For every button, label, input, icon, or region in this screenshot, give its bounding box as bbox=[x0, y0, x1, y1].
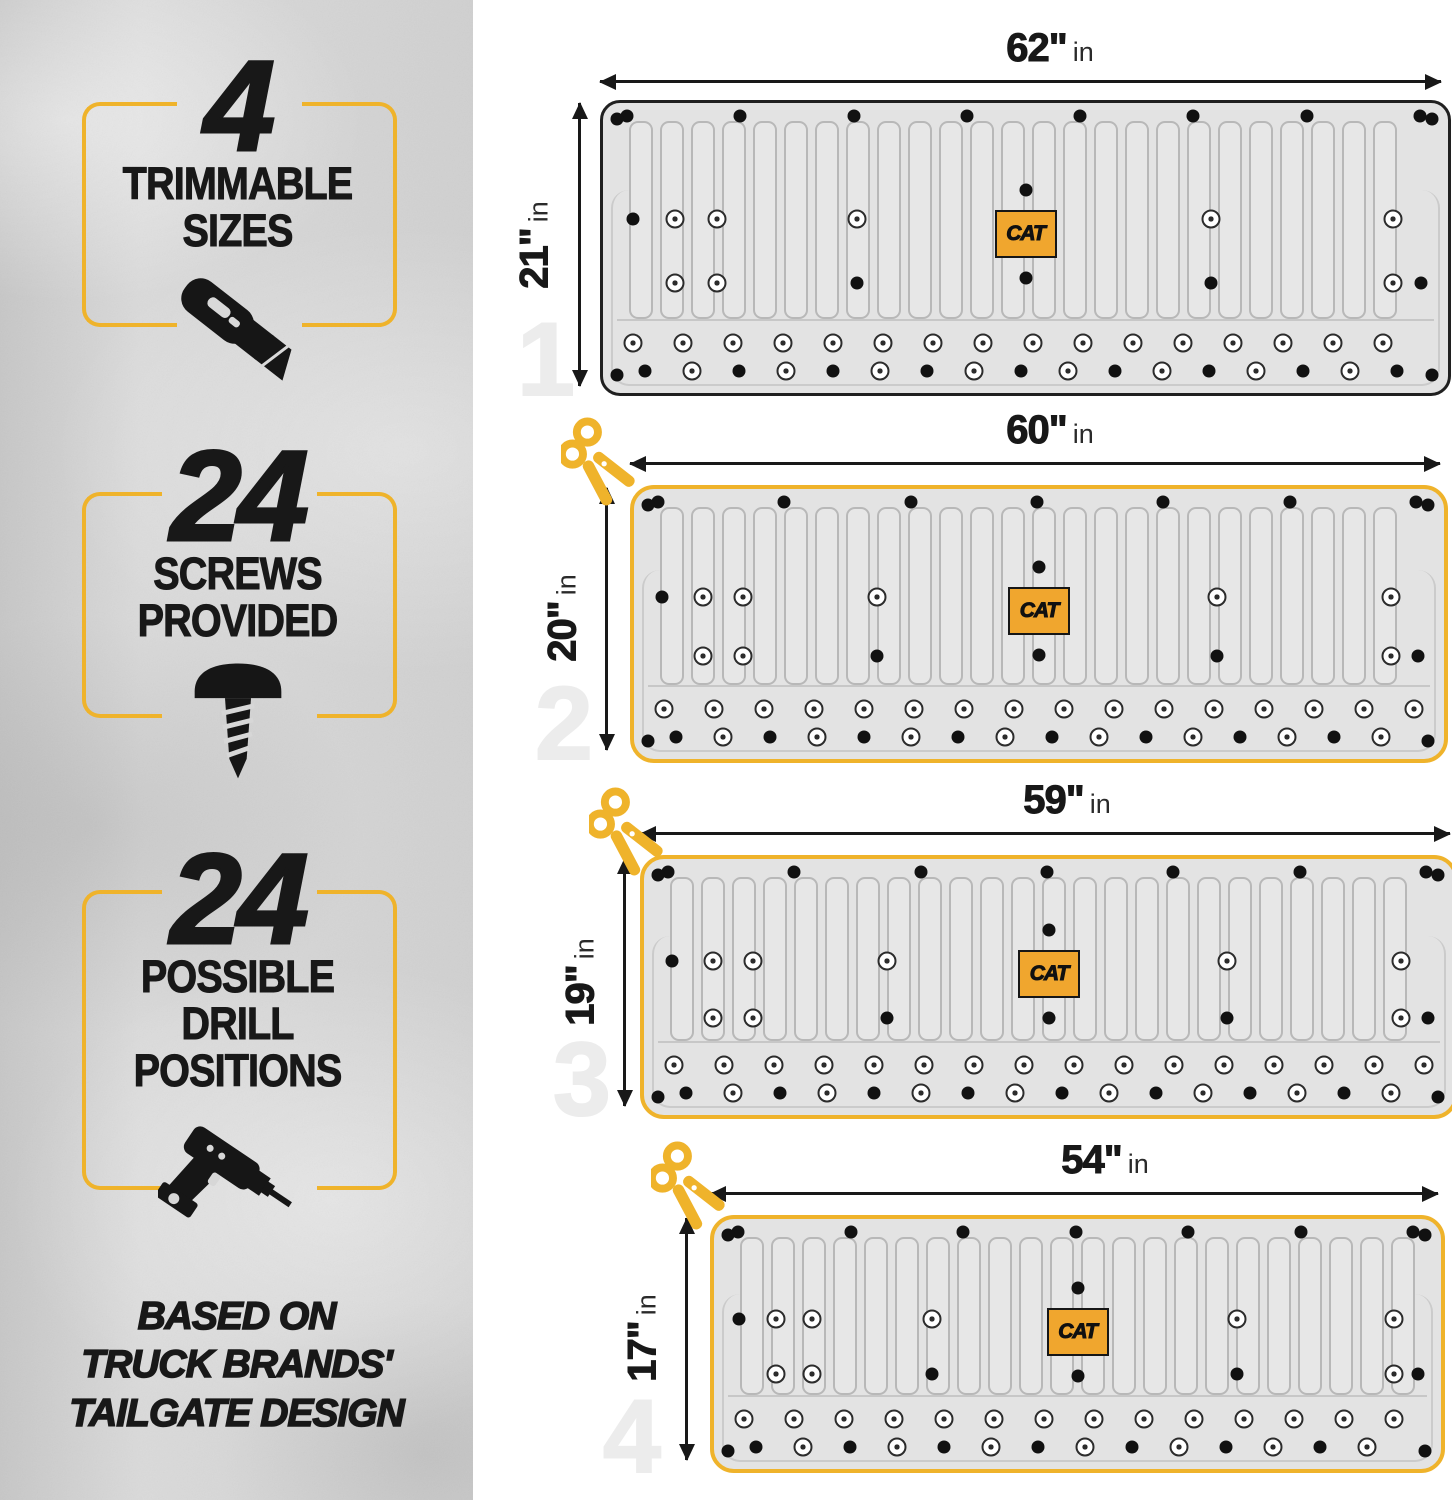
mat-slat bbox=[856, 877, 880, 1041]
rivet-dot bbox=[805, 700, 824, 719]
rivet-dot bbox=[982, 1438, 1001, 1457]
rivet-dot bbox=[1202, 210, 1221, 229]
rivet-dot bbox=[1205, 700, 1224, 719]
mat-slat bbox=[846, 507, 870, 685]
mat-slat bbox=[1104, 877, 1128, 1041]
mat-slat bbox=[1174, 1237, 1198, 1395]
rivet-dot bbox=[871, 362, 890, 381]
width-arrow bbox=[640, 832, 1450, 835]
screw-dot bbox=[952, 731, 965, 744]
screw-dot bbox=[1420, 866, 1433, 879]
rivet-dot bbox=[714, 728, 733, 747]
rivet-dot bbox=[693, 647, 712, 666]
screw-dot bbox=[1297, 365, 1310, 378]
mat-slat bbox=[784, 507, 808, 685]
mat-slat bbox=[864, 1237, 888, 1395]
screw-dot bbox=[1019, 271, 1032, 284]
mat-slat bbox=[825, 877, 849, 1041]
rivet-dot bbox=[1065, 1056, 1084, 1075]
mat-slat bbox=[1094, 121, 1118, 319]
screw-dot bbox=[904, 496, 917, 509]
height-dimension-label: 20"in bbox=[541, 574, 586, 661]
mat-slat bbox=[794, 877, 818, 1041]
mat-slat bbox=[1094, 507, 1118, 685]
rivet-dot bbox=[734, 588, 753, 607]
rivet-dot bbox=[1224, 334, 1243, 353]
rivet-dot bbox=[1055, 700, 1074, 719]
rivet-dot bbox=[1105, 700, 1124, 719]
rivet-dot bbox=[1355, 700, 1374, 719]
screw-dot bbox=[1414, 110, 1427, 123]
screw-dot bbox=[881, 1012, 894, 1025]
mat-slat bbox=[1259, 877, 1283, 1041]
mat-slat bbox=[1280, 507, 1304, 685]
screw-dot bbox=[960, 110, 973, 123]
rivet-dot bbox=[1085, 1410, 1104, 1429]
rivet-dot bbox=[724, 334, 743, 353]
rivet-dot bbox=[818, 1084, 837, 1103]
rivet-dot bbox=[1124, 334, 1143, 353]
rivet-dot bbox=[885, 1410, 904, 1429]
screw-dot bbox=[750, 1441, 763, 1454]
mat-slat bbox=[1135, 877, 1159, 1041]
rivet-dot bbox=[1194, 1084, 1213, 1103]
rivet-dot bbox=[1264, 1438, 1283, 1457]
mat-slat bbox=[833, 1237, 857, 1395]
cat-logo: CAT bbox=[1047, 1308, 1109, 1356]
width-arrow bbox=[600, 80, 1441, 83]
tailgate-mat-1: CAT bbox=[600, 100, 1451, 396]
mat-slat bbox=[1290, 877, 1314, 1041]
rivet-dot bbox=[705, 700, 724, 719]
screw-dot bbox=[733, 1313, 746, 1326]
screw-dot bbox=[642, 735, 655, 748]
rivet-dot bbox=[815, 1056, 834, 1075]
rivet-dot bbox=[824, 334, 843, 353]
screw-dot bbox=[1203, 365, 1216, 378]
screw-dot bbox=[1293, 866, 1306, 879]
mat-slat bbox=[753, 507, 777, 685]
mat-slat bbox=[949, 877, 973, 1041]
rivet-dot bbox=[1274, 334, 1293, 353]
screw-dot bbox=[1414, 277, 1427, 290]
rivet-dot bbox=[855, 700, 874, 719]
screw-dot bbox=[639, 365, 652, 378]
screw-dot bbox=[914, 866, 927, 879]
rivet-dot bbox=[878, 952, 897, 971]
rivet-dot bbox=[1076, 1438, 1095, 1457]
screw-dot bbox=[962, 1087, 975, 1100]
slat-baseline bbox=[658, 1041, 1440, 1043]
screw-dot bbox=[1432, 869, 1445, 882]
tailgate-mat-2: CAT bbox=[630, 485, 1448, 763]
height-arrow bbox=[578, 103, 581, 386]
screw-dot bbox=[1205, 277, 1218, 290]
feature-count: 24 bbox=[60, 441, 415, 554]
rivet-dot bbox=[683, 362, 702, 381]
screw-dot bbox=[1314, 1441, 1327, 1454]
rivet-dot bbox=[865, 1056, 884, 1075]
rivet-dot bbox=[803, 1365, 822, 1384]
rivet-dot bbox=[1385, 1410, 1404, 1429]
screw-dot bbox=[1426, 369, 1439, 382]
screw-dot bbox=[1422, 499, 1435, 512]
screw-dot bbox=[611, 113, 624, 126]
screw-dot bbox=[1410, 496, 1423, 509]
rivet-dot bbox=[868, 588, 887, 607]
rivet-dot bbox=[1384, 1365, 1403, 1384]
rivet-dot bbox=[1365, 1056, 1384, 1075]
rivet-dot bbox=[905, 700, 924, 719]
rivet-dot bbox=[985, 1410, 1004, 1429]
width-dimension-label: 54"in bbox=[1061, 1138, 1148, 1183]
rivet-dot bbox=[1255, 700, 1274, 719]
screw-dot bbox=[850, 277, 863, 290]
rivet-dot bbox=[1155, 700, 1174, 719]
slat-baseline bbox=[617, 319, 1434, 321]
screw-dot bbox=[626, 213, 639, 226]
feature-count: 4 bbox=[60, 51, 415, 164]
rivet-dot bbox=[1074, 334, 1093, 353]
mat-slat bbox=[1311, 121, 1335, 319]
screw-dot bbox=[1300, 110, 1313, 123]
screw-dot bbox=[844, 1226, 857, 1239]
screw-dot bbox=[1031, 496, 1044, 509]
rivet-dot bbox=[708, 210, 727, 229]
size-diagrams-panel: 62"in 21"in CAT 1 bbox=[473, 0, 1452, 1500]
screw-dot bbox=[1211, 650, 1224, 663]
slat-baseline bbox=[648, 685, 1430, 687]
screw-dot bbox=[778, 496, 791, 509]
rivet-dot bbox=[774, 334, 793, 353]
rivet-dot bbox=[1392, 952, 1411, 971]
rivet-dot bbox=[965, 1056, 984, 1075]
rivet-dot bbox=[1335, 1410, 1354, 1429]
rivet-dot bbox=[1382, 647, 1401, 666]
screw-dot bbox=[1407, 1226, 1420, 1239]
screw-dot bbox=[1283, 496, 1296, 509]
feature-count: 24 bbox=[60, 844, 415, 957]
rivet-dot bbox=[803, 1310, 822, 1329]
screw-dot bbox=[1220, 1441, 1233, 1454]
feature-label: SCREWS PROVIDED bbox=[40, 551, 435, 645]
screw-dot bbox=[1043, 924, 1056, 937]
mat-slat bbox=[763, 877, 787, 1041]
mat-number-watermark: 2 bbox=[535, 672, 590, 776]
rivet-dot bbox=[974, 334, 993, 353]
mat-slat bbox=[1342, 121, 1366, 319]
screw-dot bbox=[827, 365, 840, 378]
screw-dot bbox=[733, 365, 746, 378]
feature-drill-positions: 24 POSSIBLE DRILL POSITIONS bbox=[60, 840, 415, 1270]
rivet-dot bbox=[744, 1009, 763, 1028]
screw-dot bbox=[926, 1368, 939, 1381]
rivet-dot bbox=[624, 334, 643, 353]
screw-dot bbox=[611, 369, 624, 382]
screw-dot bbox=[680, 1087, 693, 1100]
rivet-dot bbox=[1358, 1438, 1377, 1457]
screw-dot bbox=[858, 731, 871, 744]
rivet-dot bbox=[996, 728, 1015, 747]
rivet-dot bbox=[1170, 1438, 1189, 1457]
rivet-dot bbox=[1384, 1310, 1403, 1329]
feature-screws-provided: 24 SCREWS PROVIDED bbox=[60, 435, 415, 787]
mat-slat bbox=[1166, 877, 1190, 1041]
screw-dot bbox=[1033, 560, 1046, 573]
slat-baseline bbox=[728, 1395, 1427, 1397]
rivet-dot bbox=[965, 362, 984, 381]
infographic-canvas: 4 TRIMMABLE SIZES bbox=[0, 0, 1452, 1500]
footnote: BASED ON TRUCK BRANDS' TAILGATE DESIGN bbox=[0, 1293, 473, 1438]
screw-dot bbox=[957, 1226, 970, 1239]
mat-slat bbox=[908, 121, 932, 319]
mat-slat bbox=[1311, 507, 1335, 685]
screw-dot bbox=[670, 731, 683, 744]
rivet-dot bbox=[655, 700, 674, 719]
rivet-dot bbox=[766, 1365, 785, 1384]
rivet-dot bbox=[912, 1084, 931, 1103]
mat-slat bbox=[1125, 507, 1149, 685]
mat-slat bbox=[1280, 121, 1304, 319]
height-dimension-label: 17"in bbox=[621, 1294, 666, 1381]
screw-dot bbox=[1411, 1368, 1424, 1381]
mat-slat bbox=[1156, 507, 1180, 685]
screw-dot bbox=[1231, 1368, 1244, 1381]
screw-dot bbox=[938, 1441, 951, 1454]
rivet-dot bbox=[1265, 1056, 1284, 1075]
mat-slat bbox=[939, 507, 963, 685]
screw-dot bbox=[1150, 1087, 1163, 1100]
rivet-dot bbox=[1382, 588, 1401, 607]
rivet-dot bbox=[1247, 362, 1266, 381]
height-arrow bbox=[605, 488, 608, 750]
screw-dot bbox=[1032, 1441, 1045, 1454]
rivet-dot bbox=[755, 700, 774, 719]
rivet-dot bbox=[734, 647, 753, 666]
rivet-dot bbox=[785, 1410, 804, 1429]
screw-dot bbox=[1234, 731, 1247, 744]
mat-slat bbox=[1267, 1237, 1291, 1395]
rivet-dot bbox=[794, 1438, 813, 1457]
width-arrow bbox=[630, 462, 1440, 465]
screw-dot bbox=[1140, 731, 1153, 744]
rivet-dot bbox=[902, 728, 921, 747]
screw-dot bbox=[764, 731, 777, 744]
rivet-dot bbox=[1218, 952, 1237, 971]
screw-dot bbox=[1041, 866, 1054, 879]
drill-icon bbox=[60, 1102, 415, 1252]
screw-dot bbox=[1182, 1226, 1195, 1239]
rivet-dot bbox=[1215, 1056, 1234, 1075]
utility-knife-icon bbox=[60, 257, 415, 407]
screw-dot bbox=[1043, 1012, 1056, 1025]
rivet-dot bbox=[777, 362, 796, 381]
screw-dot bbox=[1412, 650, 1425, 663]
mat-slat bbox=[1360, 1237, 1384, 1395]
mat-slat bbox=[895, 1237, 919, 1395]
rivet-dot bbox=[923, 1310, 942, 1329]
screw-dot bbox=[722, 1445, 735, 1458]
screw-dot bbox=[844, 1441, 857, 1454]
rivet-dot bbox=[915, 1056, 934, 1075]
rivet-dot bbox=[708, 274, 727, 293]
rivet-dot bbox=[888, 1438, 907, 1457]
rivet-dot bbox=[1405, 700, 1424, 719]
scissors-icon bbox=[561, 416, 649, 513]
mat-number-watermark: 4 bbox=[603, 1385, 658, 1489]
rivet-dot bbox=[1006, 1084, 1025, 1103]
mat-slat bbox=[1352, 877, 1376, 1041]
mat-slat bbox=[957, 1237, 981, 1395]
screw-dot bbox=[847, 110, 860, 123]
rivet-dot bbox=[1305, 700, 1324, 719]
screw-dot bbox=[1419, 1445, 1432, 1458]
screw-dot bbox=[1019, 183, 1032, 196]
rivet-dot bbox=[1372, 728, 1391, 747]
screw-dot bbox=[1074, 110, 1087, 123]
mat-slat bbox=[988, 1237, 1012, 1395]
rivet-dot bbox=[1184, 728, 1203, 747]
mat-slat bbox=[1249, 507, 1273, 685]
mat-slat bbox=[1063, 121, 1087, 319]
screw-dot bbox=[656, 591, 669, 604]
rivet-dot bbox=[766, 1310, 785, 1329]
screw-dot bbox=[921, 365, 934, 378]
screw-dot bbox=[774, 1087, 787, 1100]
rivet-dot bbox=[955, 700, 974, 719]
rivet-dot bbox=[1059, 362, 1078, 381]
rivet-dot bbox=[665, 1056, 684, 1075]
rivet-dot bbox=[924, 334, 943, 353]
mat-slat bbox=[1125, 121, 1149, 319]
mat-slat bbox=[753, 121, 777, 319]
tailgate-mat-3: CAT bbox=[640, 855, 1452, 1119]
rivet-dot bbox=[1165, 1056, 1184, 1075]
rivet-dot bbox=[1288, 1084, 1307, 1103]
screw-dot bbox=[1046, 731, 1059, 744]
rivet-dot bbox=[1208, 588, 1227, 607]
cat-logo: CAT bbox=[1008, 587, 1070, 635]
screw-dot bbox=[1419, 1229, 1432, 1242]
mat-slat bbox=[877, 121, 901, 319]
cat-triangle bbox=[1044, 981, 1056, 989]
mat-slat bbox=[1329, 1237, 1353, 1395]
screw-dot bbox=[1167, 866, 1180, 879]
width-dimension-label: 59"in bbox=[1023, 778, 1110, 823]
scissors-icon bbox=[651, 1140, 739, 1237]
rivet-dot bbox=[808, 728, 827, 747]
screw-dot bbox=[652, 1091, 665, 1104]
rivet-dot bbox=[1090, 728, 1109, 747]
rivet-dot bbox=[1174, 334, 1193, 353]
rivet-dot bbox=[1235, 1410, 1254, 1429]
screw-dot bbox=[1422, 735, 1435, 748]
features-sidebar: 4 TRIMMABLE SIZES bbox=[0, 0, 473, 1500]
screw-dot bbox=[1015, 365, 1028, 378]
mat-slat bbox=[1218, 121, 1242, 319]
rivet-dot bbox=[1415, 1056, 1434, 1075]
rivet-dot bbox=[715, 1056, 734, 1075]
feature-label: POSSIBLE DRILL POSITIONS bbox=[40, 954, 435, 1094]
screw-dot bbox=[1221, 1012, 1234, 1025]
rivet-dot bbox=[665, 274, 684, 293]
feature-trimmable-sizes: 4 TRIMMABLE SIZES bbox=[60, 45, 415, 397]
cat-logo: CAT bbox=[995, 210, 1057, 258]
screw-dot bbox=[871, 650, 884, 663]
screw-dot bbox=[788, 866, 801, 879]
mat-slat bbox=[1298, 1237, 1322, 1395]
screw-dot bbox=[1244, 1087, 1257, 1100]
cat-logo: CAT bbox=[1018, 950, 1080, 998]
rivet-dot bbox=[1035, 1410, 1054, 1429]
mat-slat bbox=[1019, 1237, 1043, 1395]
rivet-dot bbox=[1384, 274, 1403, 293]
mat-number-watermark: 1 bbox=[517, 308, 572, 412]
screw-dot bbox=[1338, 1087, 1351, 1100]
cat-triangle bbox=[1020, 241, 1032, 249]
rivet-dot bbox=[1115, 1056, 1134, 1075]
mat-slat bbox=[918, 877, 942, 1041]
mat-slat bbox=[970, 121, 994, 319]
rivet-dot bbox=[724, 1084, 743, 1103]
rivet-dot bbox=[703, 952, 722, 971]
screw-dot bbox=[1294, 1226, 1307, 1239]
rivet-dot bbox=[1374, 334, 1393, 353]
width-arrow bbox=[710, 1192, 1438, 1195]
rivet-dot bbox=[1384, 210, 1403, 229]
rivet-dot bbox=[847, 210, 866, 229]
screw-dot bbox=[1033, 648, 1046, 661]
screw-dot bbox=[1328, 731, 1341, 744]
rivet-dot bbox=[1341, 362, 1360, 381]
screw-dot bbox=[666, 955, 679, 968]
screw-dot bbox=[1109, 365, 1122, 378]
screw-dot bbox=[1432, 1091, 1445, 1104]
mat-slat bbox=[908, 507, 932, 685]
height-arrow bbox=[623, 858, 626, 1106]
rivet-dot bbox=[665, 210, 684, 229]
mat-slat bbox=[970, 507, 994, 685]
rivet-dot bbox=[703, 1009, 722, 1028]
mat-slat bbox=[784, 121, 808, 319]
screw-dot bbox=[1422, 1012, 1435, 1025]
scissors-icon bbox=[589, 786, 677, 883]
rivet-dot bbox=[765, 1056, 784, 1075]
rivet-dot bbox=[693, 588, 712, 607]
mat-slat bbox=[980, 877, 1004, 1041]
screw-dot bbox=[1391, 365, 1404, 378]
screw-dot bbox=[1126, 1441, 1139, 1454]
mat-slat bbox=[939, 121, 963, 319]
height-dimension-label: 21"in bbox=[513, 201, 558, 288]
feature-label: TRIMMABLE SIZES bbox=[40, 161, 435, 255]
mat-slat bbox=[1156, 121, 1180, 319]
rivet-dot bbox=[1392, 1009, 1411, 1028]
rivet-dot bbox=[1278, 728, 1297, 747]
rivet-dot bbox=[744, 952, 763, 971]
screw-dot bbox=[1071, 1281, 1084, 1294]
width-dimension-label: 62"in bbox=[1006, 26, 1093, 71]
rivet-dot bbox=[1100, 1084, 1119, 1103]
mat-slat bbox=[1143, 1237, 1167, 1395]
cat-triangle bbox=[1034, 618, 1046, 626]
screw-dot bbox=[868, 1087, 881, 1100]
rivet-dot bbox=[1285, 1410, 1304, 1429]
mat-slat bbox=[1205, 1237, 1229, 1395]
height-arrow bbox=[685, 1218, 688, 1460]
cat-triangle bbox=[1072, 1339, 1084, 1347]
mat-slat bbox=[815, 121, 839, 319]
